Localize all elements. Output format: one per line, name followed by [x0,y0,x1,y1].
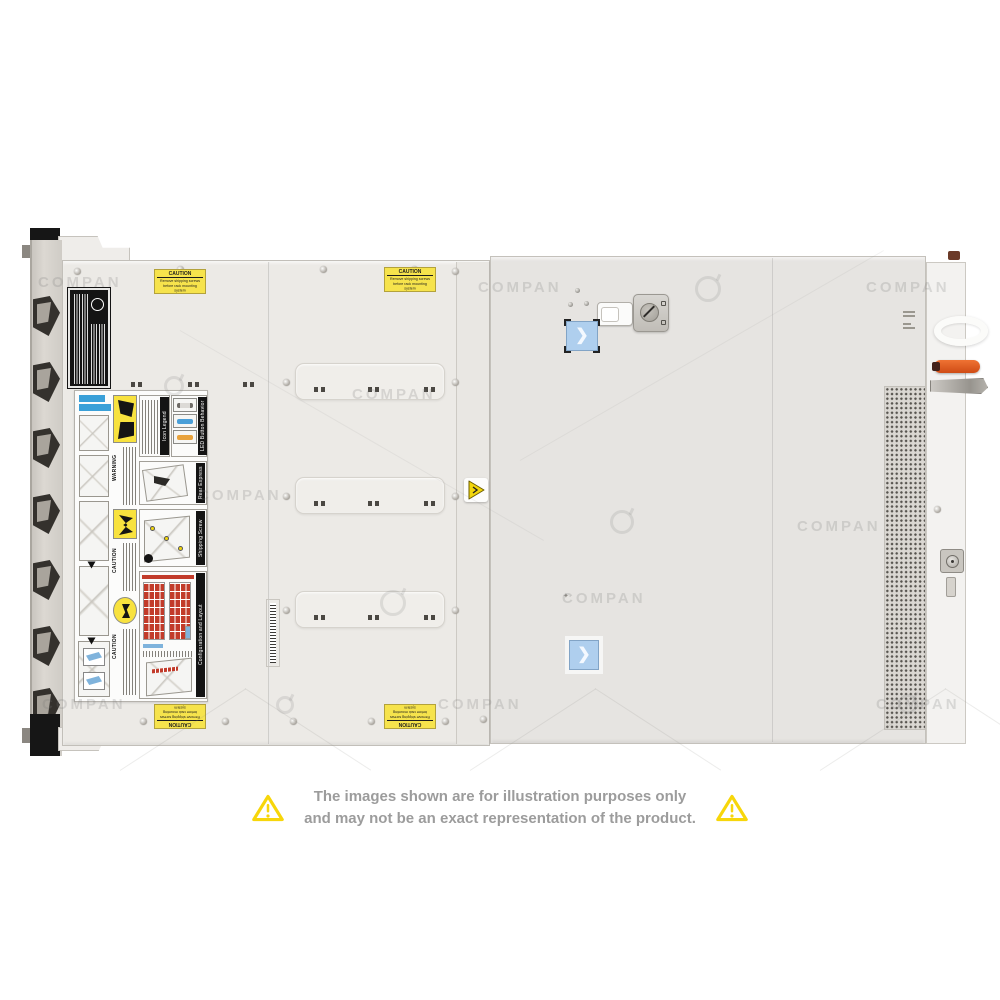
screw [320,266,327,273]
led-bar-blue [173,414,197,428]
warning-body-text [123,447,136,505]
caution-body-text [123,629,136,695]
procedure-illustration [79,415,109,451]
procedure-illustration [79,501,109,561]
caution-label: CAUTION Remove shipping screws before ra… [384,267,436,292]
rack-pin-bottom [22,728,30,743]
procedure-illustration [79,455,109,497]
product-photo-canvas: CAUTION Remove shipping screws before ra… [0,0,1000,1000]
procedure-illustration [79,566,109,636]
screw [222,718,229,725]
drive-map-grid [143,582,165,640]
unlock-icon [661,301,666,306]
warning-text: WARNING [113,447,121,481]
caution-title: CAUTION [157,271,203,278]
watermark-logo-icon [380,590,406,616]
top-cover-right-section [490,256,926,744]
rear-vent-perforation [884,386,926,730]
label-blue-tag [79,404,111,411]
warning-triangle-icon [716,793,748,823]
screw-callout [178,546,183,551]
watermark-text: COMPAN [198,487,282,504]
alignment-dot [568,302,573,307]
rack-pin-top [22,245,30,258]
disclaimer-bar: The images shown are for illustration pu… [0,786,1000,830]
pinch-hazard-icon [113,509,137,539]
cover-latch-slider [597,302,633,326]
vent-dash [903,323,911,325]
watermark-text: COMPAN [438,696,522,713]
vent-dash [903,311,915,313]
caution-body-text [123,543,136,591]
watermark-logo-icon [898,694,918,714]
screw [452,493,459,500]
step-number-icon [144,554,153,563]
lock-icon [661,320,666,325]
watermark-text: COMPAN [562,590,646,607]
rear-latch-plate [930,378,988,394]
vent-dash [903,327,915,329]
screw [283,379,290,386]
alignment-dot [584,301,589,306]
arrow-icon [88,638,96,645]
screw [480,716,487,723]
configuration-layout-panel: Configuration and Layout [139,571,207,699]
screw [452,379,459,386]
led-bar-orange [173,430,197,444]
rear-pull-ring [934,316,988,346]
rear-thumbscrew [940,549,964,573]
watermark-text: COMPAN [352,386,436,403]
cover-handle-recess [295,591,445,628]
rear-connector-nub [948,251,960,260]
pinch-hazard-icon [113,395,137,443]
cover-release-button: ❯ [569,640,599,670]
hot-surface-icon [113,597,137,624]
led-panel-title: LED Button Behavior [198,397,207,455]
procedure-illustration [78,641,110,697]
led-bar-white [173,398,197,412]
service-instruction-label: WARNING CAUTION CAUTION Icon Legend LED … [74,390,208,702]
psu-release-lever [934,360,980,373]
keylock-cylinder [640,303,659,322]
barcode-label [266,599,280,667]
cover-handle-recess [295,477,445,514]
vent-dash [903,315,915,317]
watermark-text: COMPAN [42,696,126,713]
cover-seam [772,258,773,742]
screw [140,718,147,725]
screw-callout [150,526,155,531]
cover-release-button: ❯ [566,321,598,351]
cover-keylock [633,294,669,332]
rear-clip [946,577,956,597]
icon-legend-title: Icon Legend [160,397,169,455]
arrow-icon [88,562,96,569]
led-button-behavior-panel: LED Button Behavior [171,395,207,457]
warning-triangle-sticker [464,478,488,502]
caution-label: CAUTION Remove shipping screws before ra… [154,704,206,729]
watermark-logo-icon [695,276,721,302]
caution-text: CAUTION [113,543,121,573]
icon-legend-panel: Icon Legend [139,395,170,457]
label-blue-tag [79,395,105,402]
shipping-screw-title: Shipping Screw Removal [196,511,205,565]
rack-ear-bottom [30,714,60,756]
watermark-text: COMPAN [797,518,881,535]
alignment-dot [575,288,580,293]
screw [283,493,290,500]
screw [283,607,290,614]
screw [452,607,459,614]
watermark-logo-icon [164,376,184,396]
screw-callout [164,536,169,541]
warning-triangle-icon [464,478,488,502]
screw [452,268,459,275]
rail-bracket-top [58,236,130,262]
regulatory-label [68,288,110,388]
caution-label: CAUTION Remove shipping screws before ra… [384,704,436,729]
watermark-text: COMPAN [478,279,562,296]
warning-triangle-icon [252,793,284,823]
vent-slots [243,374,257,392]
certification-mark-icon [91,298,104,311]
disclaimer-text: The images shown are for illustration pu… [304,786,696,830]
shipping-screw-panel: Shipping Screw Removal [139,509,207,567]
caution-label: CAUTION Remove shipping screws before ra… [154,269,206,294]
cover-hinge-strip [456,262,490,744]
watermark-text: COMPAN [866,279,950,296]
watermark-logo-icon [610,510,634,534]
drive-map-blue-cells [185,626,191,639]
screw [368,718,375,725]
watermark-logo-icon [276,696,294,714]
screw [934,506,941,513]
screw [442,718,449,725]
configuration-title: Configuration and Layout [196,573,205,697]
service-tag-panel: Rear Express Service Tag [139,461,207,505]
caution-text: CAUTION [113,629,121,659]
watermark-text: COMPAN [38,274,122,291]
